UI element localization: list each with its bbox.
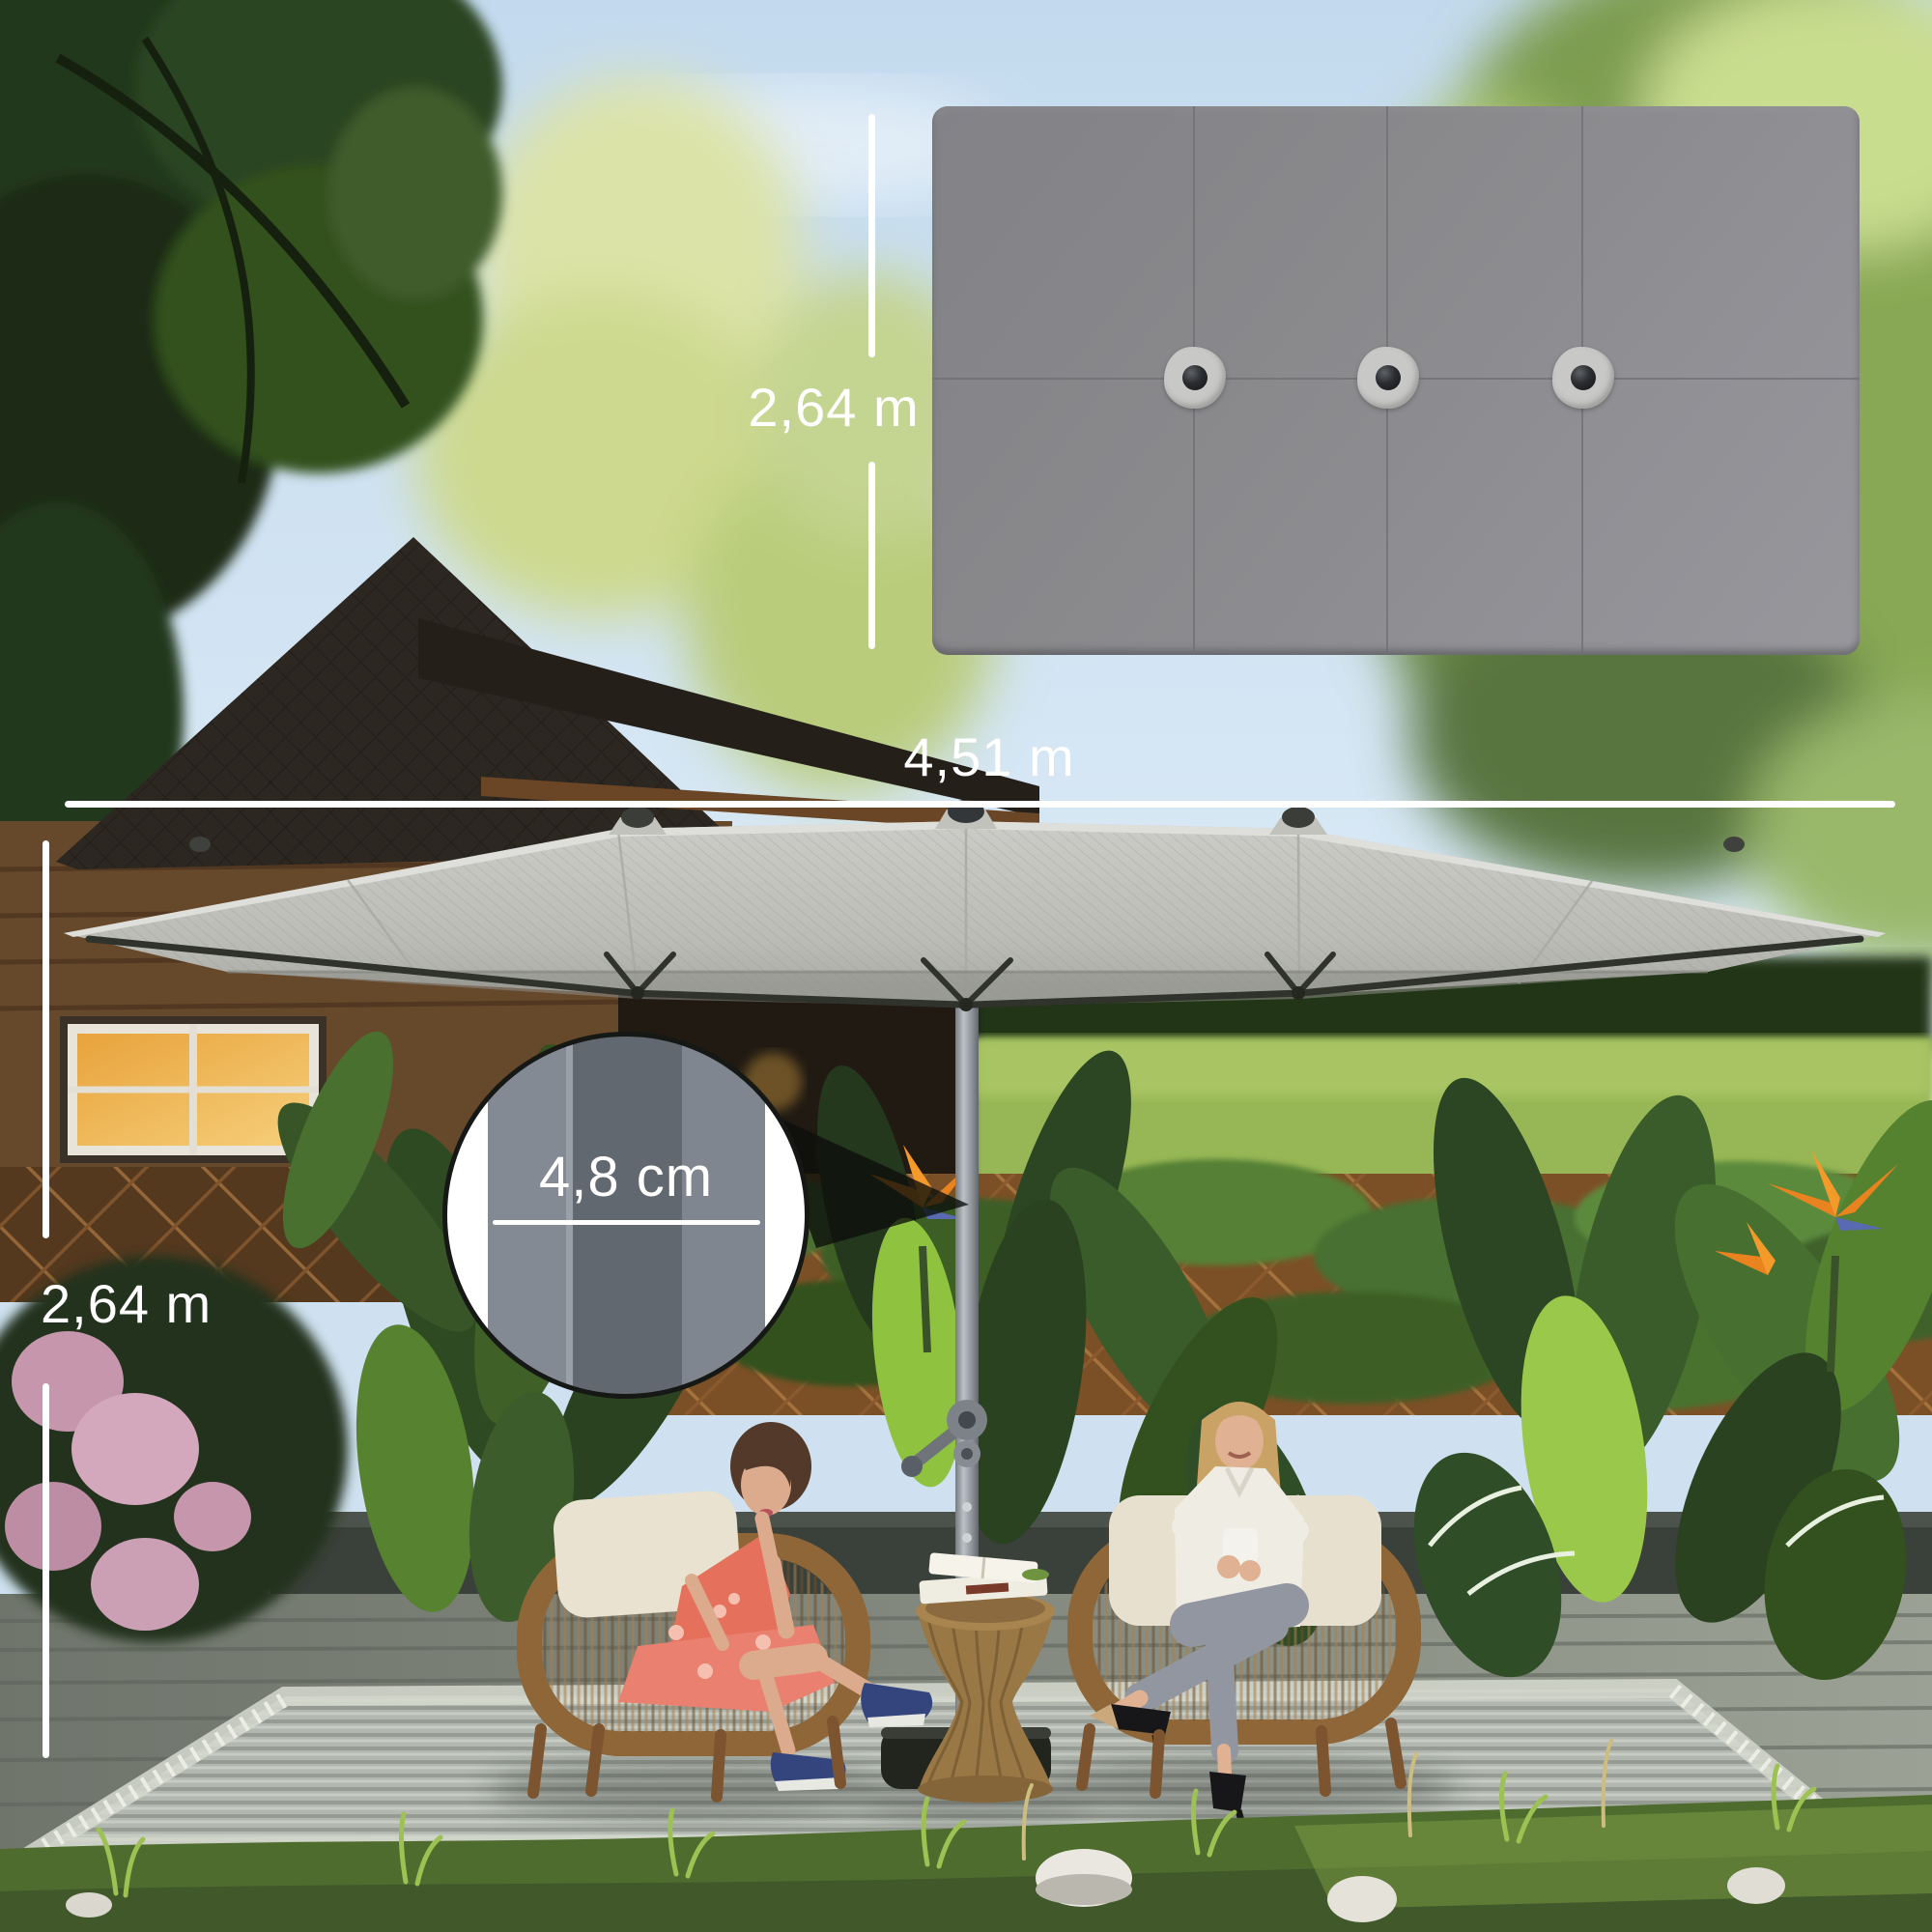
topview-depth-label: 2,64 m	[694, 381, 974, 435]
dimension-line-topview-depth-upper	[868, 114, 875, 357]
vent-button-dome	[1182, 365, 1207, 390]
dimension-line-width	[65, 801, 1895, 808]
vent-button	[1552, 347, 1614, 409]
face	[1215, 1412, 1264, 1470]
dimension-line-height-upper	[43, 840, 49, 1238]
dimension-line-topview-depth-lower	[868, 462, 875, 649]
height-label: 2,64 m	[41, 1277, 330, 1331]
pole-diameter-line	[493, 1220, 760, 1225]
white-rock	[1327, 1876, 1397, 1922]
pole-zoom-inset: 4,8 cm	[442, 1032, 810, 1399]
product-dimension-image: 4,8 cm 2,64 m 4,51 m 2,64 m	[0, 0, 1932, 1932]
white-rock	[66, 1892, 112, 1918]
white-rock	[1727, 1867, 1785, 1904]
dimension-line-height-lower	[43, 1383, 49, 1758]
vent-button	[1357, 347, 1419, 409]
vent-button-dome	[1571, 365, 1596, 390]
vent-button	[1164, 347, 1226, 409]
canopy-top-view	[932, 106, 1860, 655]
width-label: 4,51 m	[844, 730, 1134, 784]
pole-diameter-label: 4,8 cm	[447, 1145, 805, 1209]
vent-button-dome	[1376, 365, 1401, 390]
